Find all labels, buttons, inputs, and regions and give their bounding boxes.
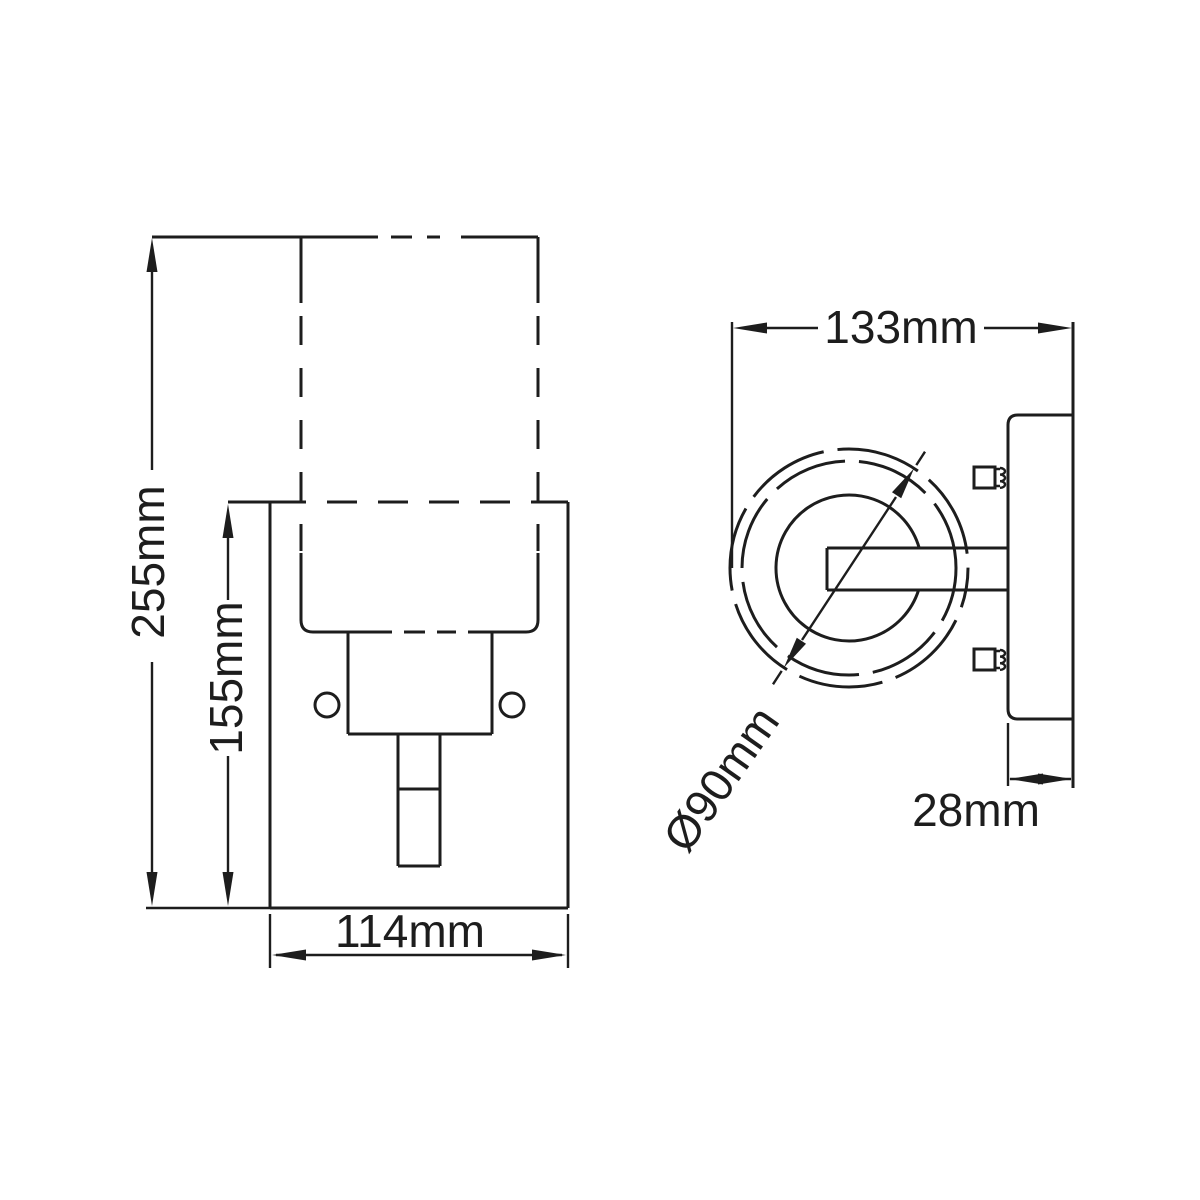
dimension-overall-depth: 133mm <box>732 301 1072 568</box>
shade-right-edge-solid <box>526 237 538 632</box>
wall-light-dimension-diagram: 255mm 155mm 114mm <box>0 0 1200 1200</box>
arrow-right-icon <box>532 950 566 961</box>
lamp-holder <box>348 632 492 866</box>
shade-left-edge-solid <box>301 237 313 632</box>
holder-cup <box>348 632 492 734</box>
arrow-up-icon <box>147 238 158 272</box>
holder-stem <box>398 734 440 866</box>
screw-head <box>974 467 995 488</box>
dimension-shade-diameter: Ø90mm <box>653 452 925 861</box>
screw-top <box>974 467 1005 488</box>
dimension-backplate-width: 114mm <box>270 905 568 968</box>
wall-plate-outline <box>1008 415 1073 719</box>
overall-height-label: 255mm <box>122 485 174 638</box>
front-view: 255mm 155mm 114mm <box>122 237 568 968</box>
arrow-left-icon <box>733 323 767 334</box>
dimension-overall-height: 255mm <box>122 238 270 908</box>
backplate-height-label: 155mm <box>200 601 252 754</box>
arrow-down-icon <box>223 872 234 906</box>
screw-hole-right <box>500 693 524 717</box>
screw-hole-left <box>315 693 339 717</box>
mount-arm <box>827 548 1008 590</box>
screw-bottom <box>974 649 1005 670</box>
dimension-backplate-height: 155mm <box>200 504 252 906</box>
arrow-left-icon <box>272 950 306 961</box>
shade-outline <box>152 237 538 632</box>
screw-head <box>974 649 995 670</box>
shade-diameter-label: Ø90mm <box>653 697 789 861</box>
arrow-right-icon <box>1038 774 1072 785</box>
arrow-right-icon <box>1038 323 1072 334</box>
side-view: 133mm Ø90mm 28mm <box>653 301 1073 861</box>
overall-depth-label: 133mm <box>824 301 977 353</box>
arrow-left-icon <box>1009 774 1043 785</box>
wall-plate <box>1008 322 1073 788</box>
inner-tube-circle <box>776 495 919 641</box>
arrow-up-icon <box>223 504 234 538</box>
technical-drawing-canvas: 255mm 155mm 114mm <box>0 0 1200 1200</box>
dimension-plate-depth: 28mm <box>912 723 1072 836</box>
arrow-down-icon <box>147 872 158 906</box>
plate-depth-label: 28mm <box>912 784 1040 836</box>
dim-90-line <box>802 497 896 640</box>
backplate-width-label: 114mm <box>335 905 485 957</box>
